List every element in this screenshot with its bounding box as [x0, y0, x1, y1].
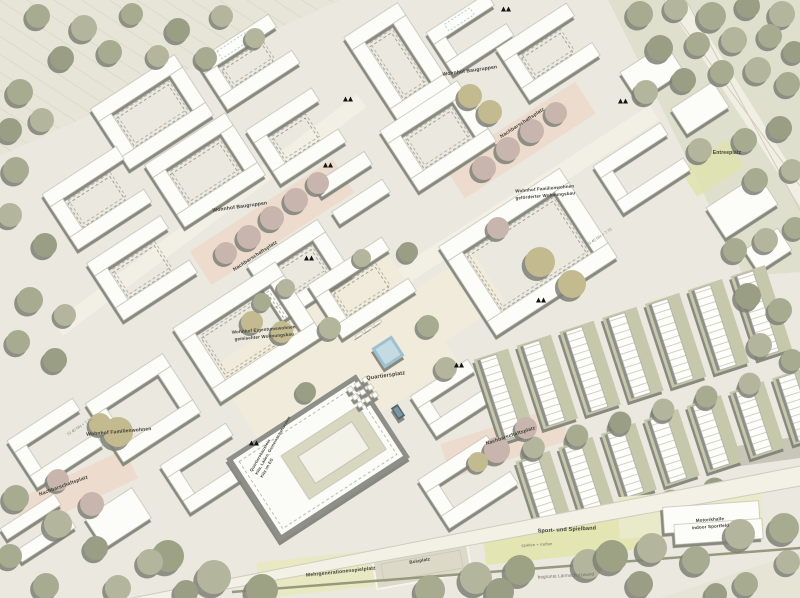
masterplan-svg: Wohnhof Baugruppen Nachbarschaftsplatz E…	[0, 0, 800, 598]
masterplan-map: Wohnhof Baugruppen Nachbarschaftsplatz E…	[0, 0, 800, 598]
label-entreeplatz: Entreeplatz	[713, 150, 742, 156]
